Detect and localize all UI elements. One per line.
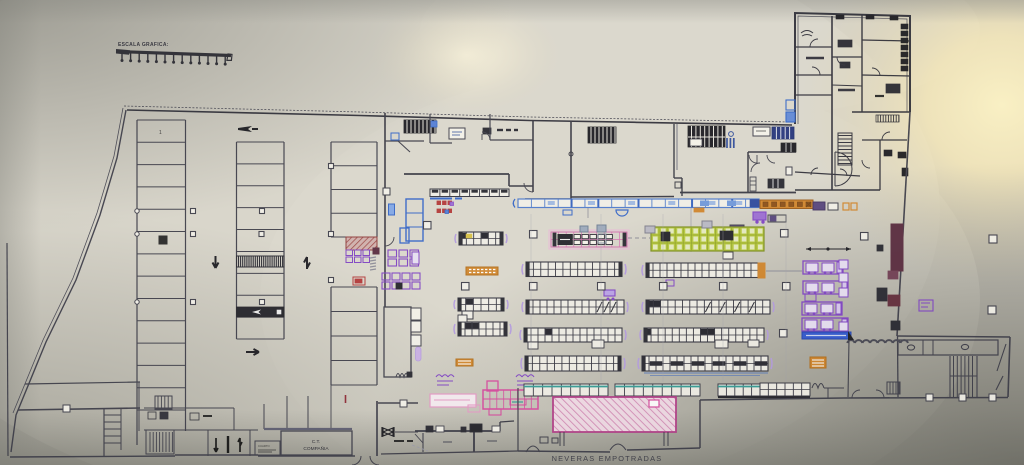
svg-text:1: 1 xyxy=(159,130,162,136)
svg-text:COMPAÑIA: COMPAÑIA xyxy=(303,445,329,452)
svg-text:ESCALA GRAFICA:: ESCALA GRAFICA: xyxy=(118,42,169,48)
svg-text:NEVERAS EMPOTRADAS: NEVERAS EMPOTRADAS xyxy=(552,454,663,463)
svg-text:C.T.: C.T. xyxy=(312,439,321,445)
svg-text:CUARTO: CUARTO xyxy=(258,444,271,448)
